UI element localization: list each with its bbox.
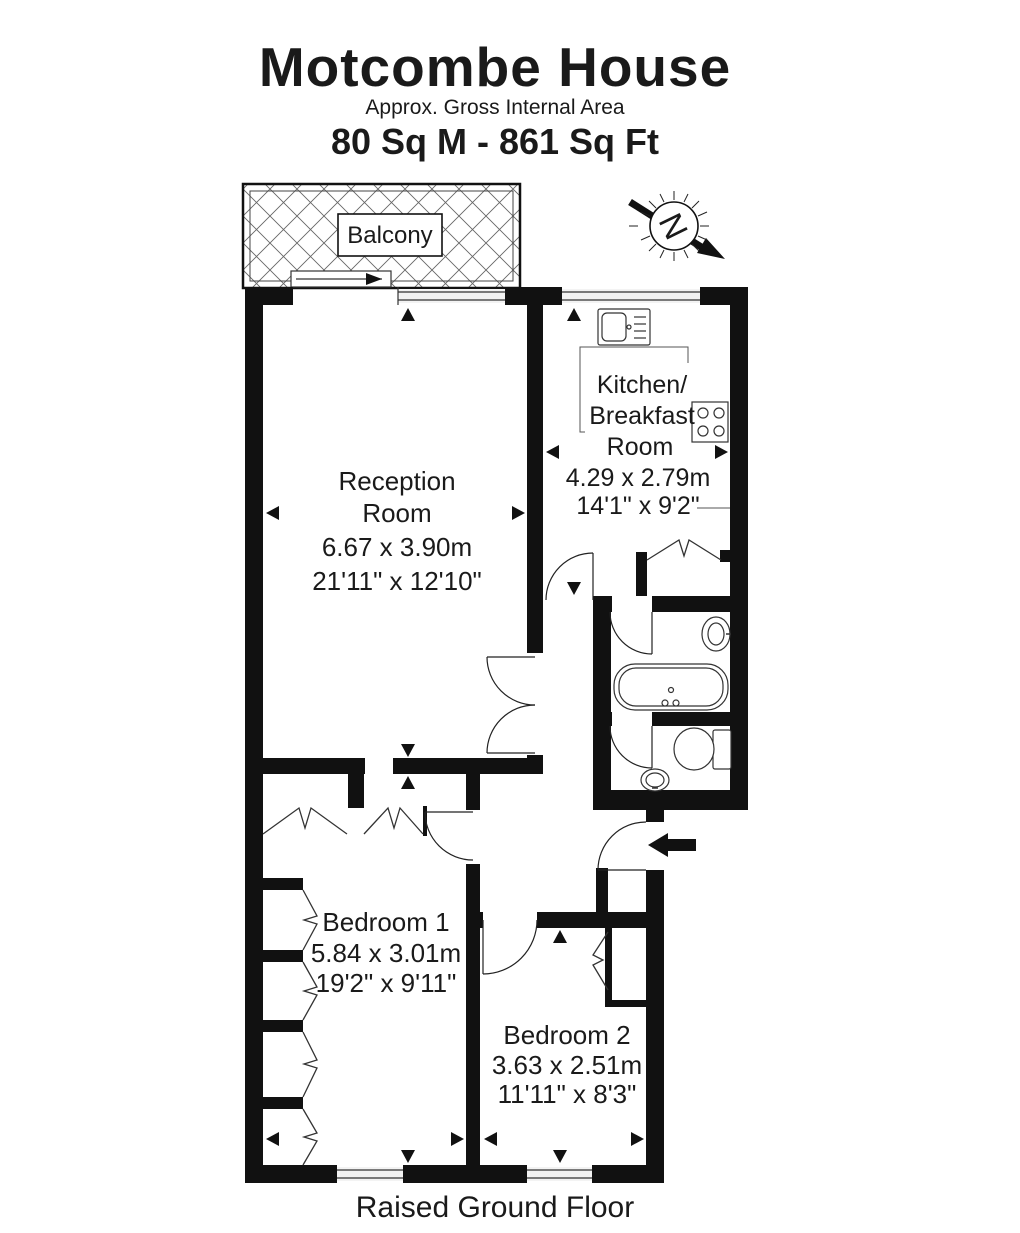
sink-icon xyxy=(598,309,650,345)
balcony: Balcony xyxy=(243,184,520,288)
bedroom2-room-label: Bedroom 2 3.63 x 2.51m 11'11" x 8'3" xyxy=(492,1020,642,1109)
bedroom1-top-wardrobe-doors-icon xyxy=(263,808,423,834)
bedroom2-window-icon xyxy=(527,1167,592,1181)
bedroom2-imperial: 11'11" x 8'3" xyxy=(498,1079,637,1109)
reception-window-icon xyxy=(398,287,505,305)
bedroom1-imperial: 19'2" x 9'11" xyxy=(316,968,457,998)
wc-door-swing xyxy=(610,726,652,768)
kitchen-name-line3: Room xyxy=(607,433,674,461)
bedroom2-name: Bedroom 2 xyxy=(503,1020,630,1050)
wc-basin-icon xyxy=(641,769,669,791)
kitchen-window-icon xyxy=(562,289,700,303)
reception-name-line1: Reception xyxy=(338,466,455,496)
kitchen-metric: 4.29 x 2.79m xyxy=(566,464,711,492)
kitchen-door-swing xyxy=(546,553,593,600)
floorplan-canvas: Motcombe House Approx. Gross Internal Ar… xyxy=(0,0,1020,1233)
bedroom2-metric: 3.63 x 2.51m xyxy=(492,1050,642,1080)
bathroom-fixtures xyxy=(614,617,731,791)
bedroom1-metric: 5.84 x 3.01m xyxy=(311,938,461,968)
sliding-door-icon xyxy=(291,271,391,287)
page-subtitle: Approx. Gross Internal Area xyxy=(365,96,624,119)
entrance-arrow-icon xyxy=(648,833,696,857)
balcony-label: Balcony xyxy=(347,222,432,249)
washbasin-icon xyxy=(702,617,731,651)
bedroom1-window-icon xyxy=(337,1167,403,1181)
entrance-door-swing xyxy=(598,822,646,870)
toilet-icon xyxy=(674,728,731,770)
bedroom2-door-swing xyxy=(483,920,537,974)
page-title: Motcombe House xyxy=(259,36,731,98)
kitchen-name-line1: Kitchen/ xyxy=(597,371,687,399)
bedroom1-room-label: Bedroom 1 5.84 x 3.01m 19'2" x 9'11" xyxy=(311,907,461,998)
hob-icon xyxy=(692,402,728,442)
bedroom1-left-wardrobe-doors-icon xyxy=(303,890,317,1165)
reception-room-label: Reception Room 6.67 x 3.90m 21'11" x 12'… xyxy=(312,466,482,596)
bathroom-door-swing xyxy=(610,612,652,654)
bedroom1-door-swing xyxy=(425,812,473,860)
header: Motcombe House Approx. Gross Internal Ar… xyxy=(259,36,731,162)
reception-name-line2: Room xyxy=(362,498,431,528)
kitchen-closet-folding-door-icon xyxy=(647,540,721,560)
kitchen-imperial: 14'1" x 9'2" xyxy=(576,492,699,520)
reception-imperial: 21'11" x 12'10" xyxy=(312,566,482,596)
compass-north-icon: N xyxy=(629,191,725,261)
bathtub-icon xyxy=(614,664,728,710)
reception-double-door-swing xyxy=(487,657,535,753)
kitchen-name-line2: Breakfast xyxy=(589,402,695,430)
gross-area-label: 80 Sq M - 861 Sq Ft xyxy=(331,121,659,162)
reception-metric: 6.67 x 3.90m xyxy=(322,532,472,562)
bedroom1-name: Bedroom 1 xyxy=(322,907,449,937)
floor-label: Raised Ground Floor xyxy=(356,1191,634,1224)
floorplan-page: Motcombe House Approx. Gross Internal Ar… xyxy=(0,0,1020,1233)
